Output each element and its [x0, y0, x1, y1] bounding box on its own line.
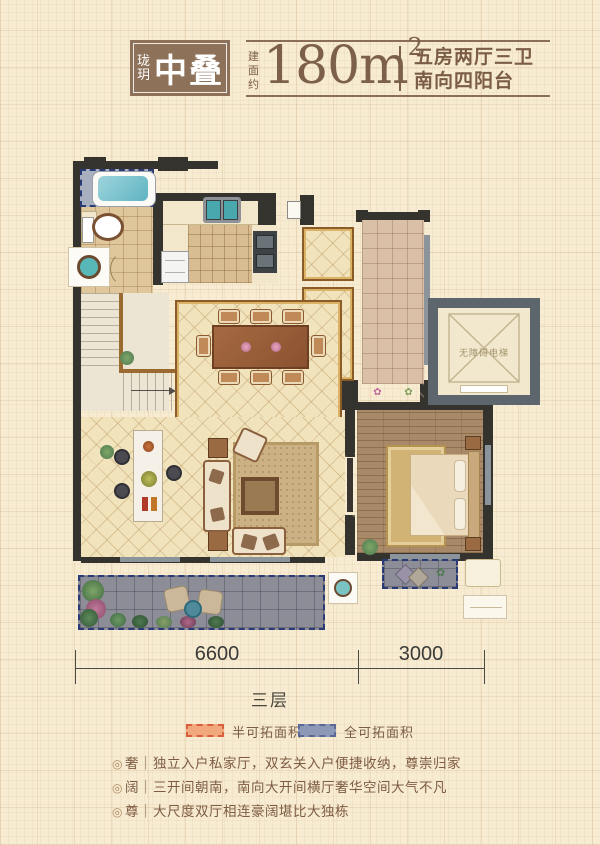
- nightstand: [465, 537, 481, 551]
- terrace-basin: [334, 579, 352, 597]
- dimension-tick: [484, 650, 485, 684]
- bathtub-water: [98, 176, 148, 201]
- brand-name-large: 中叠: [154, 44, 224, 92]
- wall-pillar: [158, 157, 188, 171]
- dimension-tick: [75, 650, 76, 684]
- living-cabinet: [81, 421, 99, 477]
- dining-chair: [218, 309, 240, 324]
- dining-chair: [282, 309, 304, 324]
- header-divider: [399, 46, 401, 91]
- flower-icon: ✿: [436, 566, 445, 579]
- bar-stool: [114, 483, 130, 499]
- plant: [100, 445, 114, 459]
- feature-line: ◎奢｜独立入户私家厅，双玄关入户便捷收纳，尊崇归家: [112, 752, 461, 772]
- feature-separator: ｜: [139, 756, 153, 771]
- elevator-shaft: 无障碍电梯: [438, 308, 530, 395]
- stove: [253, 231, 277, 273]
- elevator-slot: [460, 385, 508, 393]
- bed-pillow: [454, 498, 466, 530]
- elevator-wall-right: [530, 308, 540, 395]
- kitchen-door: [287, 201, 301, 219]
- dining-chair: [282, 370, 304, 385]
- flower-icon: ✿: [404, 387, 412, 398]
- dimension-right: 3000: [361, 643, 481, 666]
- bar-stool: [166, 465, 182, 481]
- foyer-upper: [302, 227, 354, 281]
- kitchen-sink: [203, 197, 241, 223]
- stair-arrow: [131, 390, 171, 391]
- floor-label: 三层: [180, 686, 360, 711]
- terrace-plant: [208, 616, 224, 628]
- feature-tag: 阔: [125, 780, 139, 795]
- dining-table: [212, 325, 309, 369]
- sofa-main: [203, 460, 231, 532]
- dining-chair: [196, 335, 211, 357]
- bathtub: [92, 171, 156, 207]
- bullet-icon: ◎: [112, 757, 123, 771]
- flower-icon: ✿: [373, 387, 381, 398]
- brand-name-small: 珑玥: [136, 54, 151, 82]
- feature-text: 大尺度双厅相连豪阔堪比大独栋: [153, 804, 349, 819]
- terrace-plant: [80, 609, 98, 627]
- legend-label-fully-expandable: 全可拓面积: [344, 722, 414, 741]
- south-terrace: [78, 575, 325, 630]
- brand-badge: 珑玥 中叠: [130, 40, 230, 96]
- dining-chair: [250, 370, 272, 385]
- wall-pillar: [342, 380, 358, 410]
- feature-text: 三开间朝南，南向大开间横厅奢华空间大气不凡: [153, 780, 447, 795]
- bottle: [142, 497, 148, 511]
- bottle: [151, 497, 157, 511]
- side-table: [208, 531, 228, 551]
- wall-living-bedroom: [345, 515, 355, 555]
- terrace-plant: [132, 615, 148, 628]
- bedroom-balcony: ✿: [382, 559, 458, 589]
- dimension-left: 6600: [157, 643, 277, 666]
- corridor-planter: ✿ ✿: [362, 384, 424, 400]
- terrace-plant: [156, 616, 172, 628]
- bath-door-arc: [110, 251, 146, 287]
- feature-separator: ｜: [139, 804, 153, 819]
- rooms-summary: 五房两厅三卫: [414, 46, 534, 70]
- terrace-basin-unit: [328, 572, 358, 604]
- bedroom-door: [347, 458, 353, 512]
- coffee-table: [241, 477, 279, 515]
- dimension-tick: [358, 650, 359, 684]
- area-number: 180m: [263, 36, 408, 96]
- fridge-line: [165, 272, 185, 273]
- elevator-wall-top: [428, 298, 540, 308]
- coffee-table-top: [245, 481, 275, 511]
- bullet-icon: ◎: [112, 781, 123, 795]
- wall-left: [73, 161, 81, 561]
- elevator-label: 无障碍电梯: [438, 346, 530, 359]
- blanket-fold: [411, 485, 445, 535]
- fridge-line: [165, 260, 185, 261]
- floorplan-poster: 珑玥 中叠 建面约 180m2 五房两厅三卫 南向四阳台: [0, 0, 600, 845]
- wash-basin: [77, 255, 101, 279]
- stair-flight-upper: [81, 293, 121, 373]
- bar-stool: [114, 449, 130, 465]
- headboard: [468, 451, 480, 539]
- dimension-line: [75, 668, 485, 669]
- burner: [256, 254, 274, 268]
- throw-pillow: [208, 468, 224, 484]
- sink-basin: [223, 200, 238, 220]
- window-bedroom: [485, 445, 491, 505]
- plant: [120, 351, 134, 365]
- burner: [256, 235, 274, 249]
- fridge: [161, 251, 189, 283]
- elevator-wall-left: [428, 308, 438, 395]
- nightstand: [465, 436, 481, 450]
- wall-living-bedroom: [345, 407, 355, 457]
- feature-tag: 奢: [125, 756, 139, 771]
- legend-swatch-fully-expandable: [298, 724, 336, 737]
- area-prefix: 建面约: [248, 50, 261, 92]
- sofa-loveseat: [232, 527, 286, 555]
- dining-chair: [250, 309, 272, 324]
- throw-pillow: [210, 507, 225, 522]
- bullet-icon: ◎: [112, 805, 123, 819]
- terrace-plant: [110, 613, 126, 627]
- plant: [362, 539, 378, 555]
- exterior-unit-line: [470, 607, 502, 608]
- orientation-summary: 南向四阳台: [414, 70, 534, 94]
- table-flowers: [241, 342, 251, 352]
- header-info: 五房两厅三卫 南向四阳台: [414, 46, 534, 94]
- living-cabinet: [81, 483, 99, 551]
- balcony-unit: [465, 559, 501, 587]
- throw-pillow: [262, 533, 280, 551]
- toilet: [92, 213, 124, 241]
- feature-separator: ｜: [139, 780, 153, 795]
- exterior-unit: [463, 595, 507, 619]
- sink-basin: [206, 200, 221, 220]
- table-flowers: [271, 342, 281, 352]
- fruit-bowl: [141, 471, 157, 487]
- terrace-table: [184, 600, 202, 618]
- kitchen-cabinet: [285, 223, 299, 283]
- side-table: [208, 438, 228, 458]
- feature-tag: 尊: [125, 804, 139, 819]
- wall-pillar: [300, 195, 314, 225]
- legend-label-semi-expandable: 半可拓面积: [232, 722, 302, 741]
- wall-pillar: [258, 193, 276, 225]
- floor-plan: ✿ ✿ 无障碍电梯: [60, 155, 540, 635]
- bed-pillow: [454, 460, 466, 492]
- dining-chair: [218, 370, 240, 385]
- corridor-floor: [362, 220, 424, 384]
- dining-chair: [311, 335, 326, 357]
- bar-decor: [143, 441, 154, 452]
- throw-pillow: [240, 533, 257, 550]
- bar-table: [133, 430, 163, 522]
- elevator-wall-bottom: [428, 395, 540, 405]
- feature-text: 独立入户私家厅，双玄关入户便捷收纳，尊崇归家: [153, 756, 461, 771]
- feature-line: ◎尊｜大尺度双厅相连豪阔堪比大独栋: [112, 800, 349, 820]
- legend-swatch-semi-expandable: [186, 724, 224, 737]
- feature-line: ◎阔｜三开间朝南，南向大开间横厅奢华空间大气不凡: [112, 776, 447, 796]
- kitchen-floor: [188, 225, 253, 283]
